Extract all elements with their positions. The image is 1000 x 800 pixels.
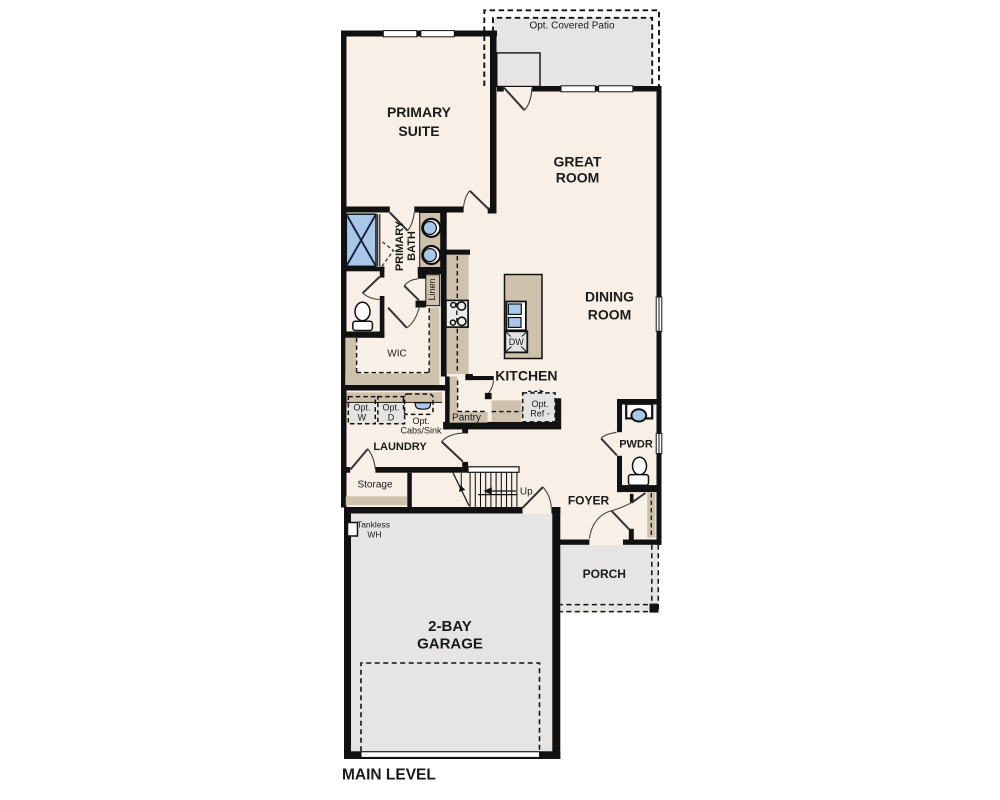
svg-text:GREAT: GREAT bbox=[554, 154, 602, 170]
svg-text:Opt.: Opt. bbox=[382, 403, 399, 413]
svg-text:LAUNDRY: LAUNDRY bbox=[373, 441, 427, 453]
svg-text:DW: DW bbox=[509, 337, 524, 347]
svg-text:Opt.: Opt. bbox=[353, 403, 370, 413]
svg-text:2-BAY: 2-BAY bbox=[428, 618, 472, 635]
svg-text:ROOM: ROOM bbox=[588, 307, 632, 323]
svg-text:FOYER: FOYER bbox=[568, 493, 610, 507]
svg-text:Opt. Covered Patio: Opt. Covered Patio bbox=[529, 21, 614, 32]
svg-text:DINING: DINING bbox=[585, 289, 634, 305]
svg-text:W: W bbox=[358, 413, 367, 423]
svg-text:WH: WH bbox=[367, 530, 381, 540]
svg-text:SUITE: SUITE bbox=[398, 123, 439, 139]
svg-text:GARAGE: GARAGE bbox=[417, 635, 483, 652]
svg-text:Opt.: Opt. bbox=[531, 399, 548, 409]
svg-text:Pantry: Pantry bbox=[452, 413, 481, 424]
svg-text:D: D bbox=[388, 413, 395, 423]
svg-text:PRIMARY: PRIMARY bbox=[394, 220, 406, 271]
svg-text:Cabs/Sink: Cabs/Sink bbox=[400, 426, 442, 436]
svg-text:Up: Up bbox=[520, 487, 533, 498]
svg-text:PORCH: PORCH bbox=[583, 567, 626, 581]
svg-text:Storage: Storage bbox=[357, 480, 392, 491]
svg-text:WIC: WIC bbox=[387, 349, 406, 360]
svg-text:Ref -: Ref - bbox=[530, 409, 550, 419]
svg-text:Linen: Linen bbox=[427, 278, 437, 300]
svg-text:KITCHEN: KITCHEN bbox=[495, 368, 557, 384]
svg-text:PRIMARY: PRIMARY bbox=[387, 104, 452, 120]
svg-text:ROOM: ROOM bbox=[556, 170, 600, 186]
svg-text:Tankless: Tankless bbox=[357, 520, 390, 530]
svg-text:MAIN LEVEL: MAIN LEVEL bbox=[342, 767, 436, 784]
svg-text:BATH: BATH bbox=[406, 231, 418, 261]
svg-text:PWDR: PWDR bbox=[619, 439, 653, 451]
svg-text:Opt.: Opt. bbox=[412, 416, 429, 426]
